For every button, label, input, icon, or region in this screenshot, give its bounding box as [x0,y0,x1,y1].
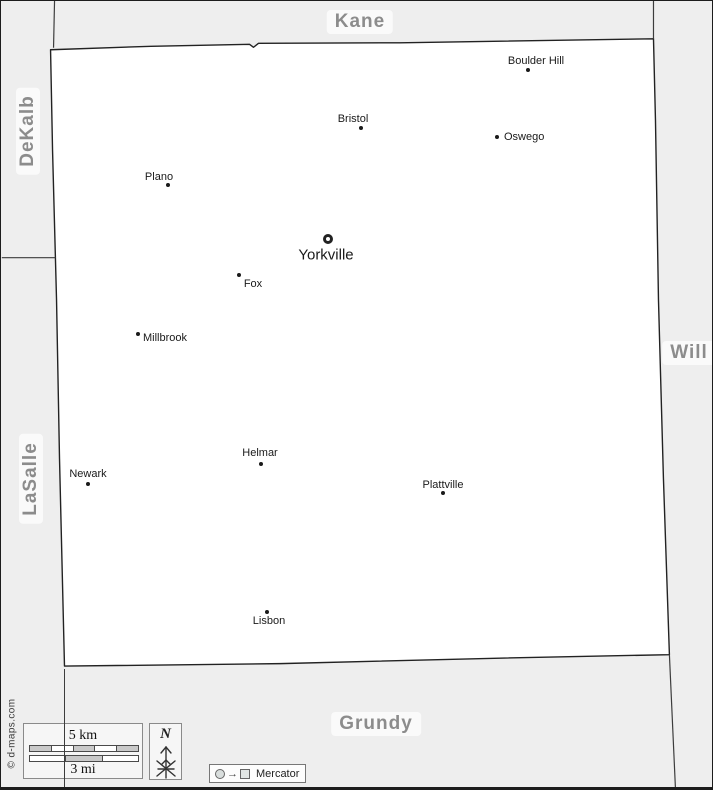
north-label: N [150,726,181,743]
place-label-boulder-hill: Boulder Hill [508,55,564,67]
lasalle-grundy-line [64,669,65,788]
county-label-will: Will [662,341,713,365]
place-marker-lisbon [265,610,269,614]
place-marker-millbrook [136,332,140,336]
place-marker-bristol [359,126,363,130]
county-label-kane: Kane [327,10,393,34]
scale-segment [103,756,138,761]
scale-bar-mi [29,755,139,762]
scale-segment [74,746,96,751]
county-label-grundy: Grundy [331,712,421,736]
scale-bar-box: 5 km 3 mi [23,723,143,779]
projection-legend: → Mercator [209,764,306,783]
scale-segment [66,756,102,761]
county-map: KaneDeKalbLaSalleWillGrundyBoulder HillB… [0,0,713,790]
map-square-icon [240,769,250,779]
place-marker-oswego [495,135,499,139]
scale-mi-label: 3 mi [24,762,142,778]
scale-segment [30,746,52,751]
place-label-oswego: Oswego [504,131,544,143]
globe-circle-icon [215,769,225,779]
place-marker-newark [86,482,90,486]
scale-segment [117,746,138,751]
place-label-helmar: Helmar [242,447,277,459]
kendall-county-shape [51,39,670,666]
copyright-text: © d-maps.com [7,679,18,789]
place-marker-boulder-hill [526,68,530,72]
place-marker-fox [237,273,241,277]
place-marker-helmar [259,462,263,466]
place-label-yorkville: Yorkville [298,247,353,264]
place-label-newark: Newark [69,468,106,480]
place-label-lisbon: Lisbon [253,615,285,627]
arrow-right-icon: → [227,769,238,779]
place-label-plattville: Plattville [423,479,464,491]
place-label-fox: Fox [244,278,262,290]
county-label-dekalb: DeKalb [16,87,40,174]
scale-km-label: 5 km [24,728,142,744]
grundy-will-line [669,655,675,787]
place-marker-plattville [441,491,445,495]
scale-segment [52,746,74,751]
kane-dekalb-line [54,1,55,48]
county-label-lasalle: LaSalle [19,434,43,524]
place-label-millbrook: Millbrook [143,332,187,344]
place-label-bristol: Bristol [338,113,369,125]
place-marker-plano [166,183,170,187]
scale-segment [30,756,66,761]
projection-name: Mercator [256,768,299,780]
north-arrow-box: N [149,723,182,780]
scale-segment [95,746,117,751]
county-seat-marker-yorkville [323,234,333,244]
scale-bar-km [29,745,139,752]
place-label-plano: Plano [145,171,173,183]
compass-star-icon [153,743,179,779]
